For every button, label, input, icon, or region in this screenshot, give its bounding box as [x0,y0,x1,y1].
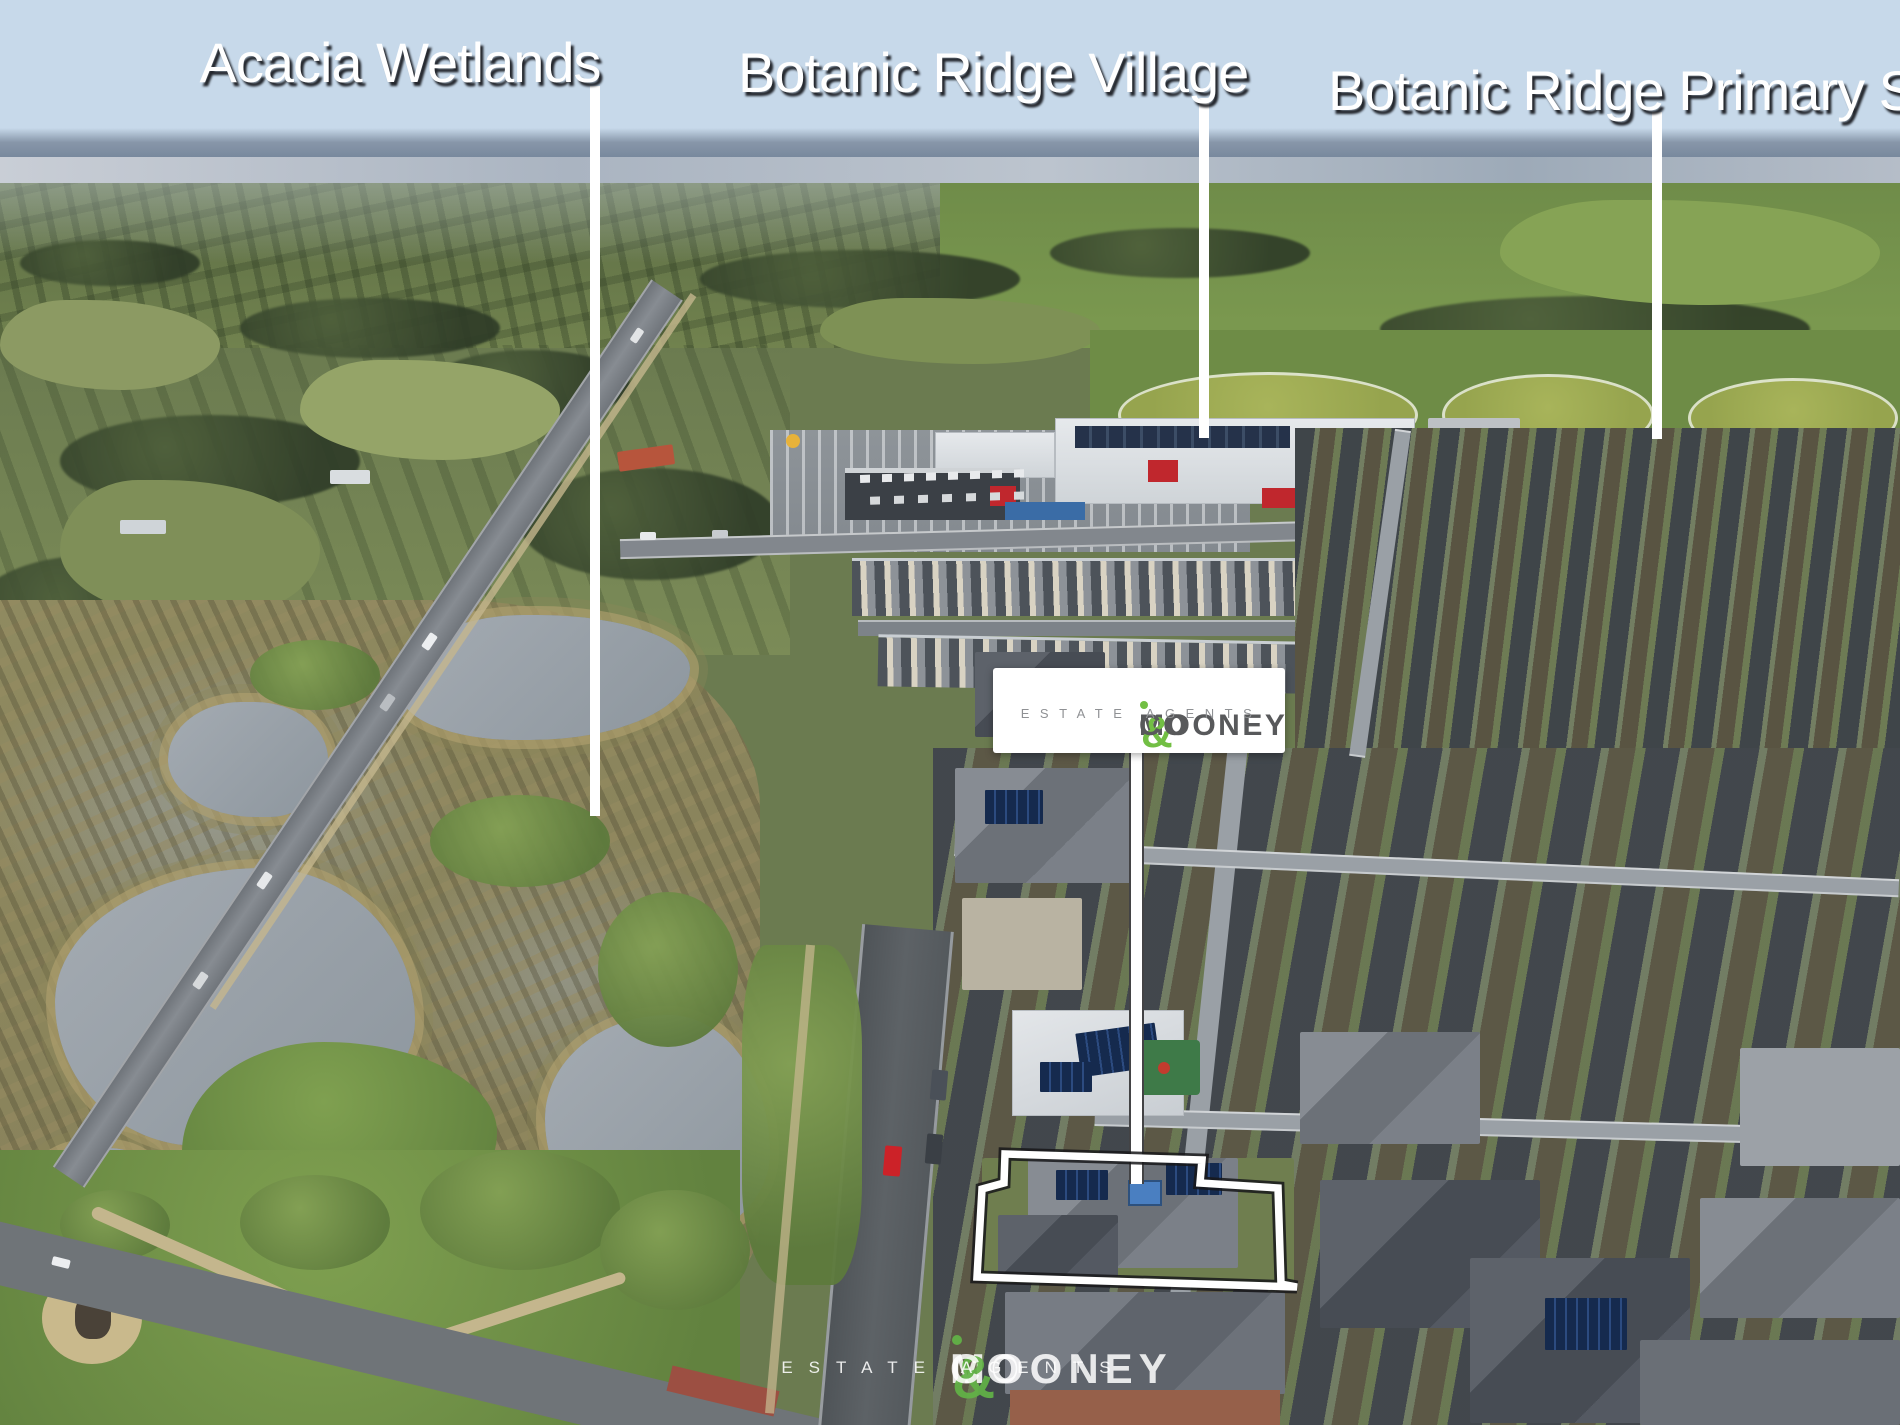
property-outline [0,0,1900,1425]
decor-decor [977,1154,1297,1287]
agency-logo-card: MOONEY & CO ESTATE AGENTS [993,668,1285,753]
brand-tagline: ESTATE AGENTS [1016,706,1262,721]
label-acacia-wetlands: Acacia Wetlands [150,30,650,95]
decor-decor [977,1154,1297,1287]
label-botanic-ridge-primary-school: Botanic Ridge Primary School [1328,58,1900,123]
watermark-amp-dot-icon [952,1335,962,1345]
decor-decor: Botanic Ridge Village [738,41,1248,104]
decor-decor: Acacia Wetlands [199,31,600,94]
label-botanic-ridge-village: Botanic Ridge Village [738,40,1238,105]
decor-decor: Botanic Ridge Primary School [1328,59,1900,122]
aerial-photo-stage: Acacia Wetlands Botanic Ridge Village Bo… [0,0,1900,1425]
watermark-tagline: ESTATE AGENTS [773,1358,1126,1378]
